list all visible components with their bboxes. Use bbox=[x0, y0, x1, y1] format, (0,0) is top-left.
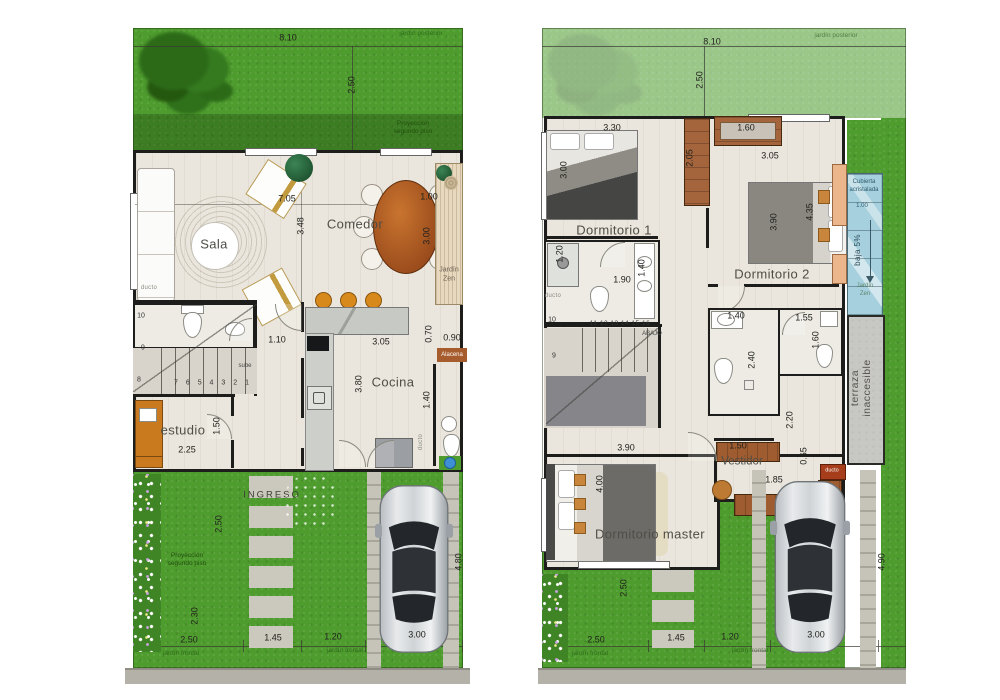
dim-label: 7 6 5 4 3 2 1 bbox=[174, 380, 252, 387]
room-label-vestidor: Vestidor bbox=[721, 456, 763, 468]
wall bbox=[433, 364, 436, 466]
shelf bbox=[135, 456, 163, 468]
dim-label: 1.90 bbox=[613, 276, 631, 285]
dim-label: 3.90 bbox=[770, 213, 779, 231]
dim-label: 2.50 bbox=[587, 636, 605, 645]
dim-label: ABAJO bbox=[642, 331, 662, 337]
dim-label: baja 5% bbox=[854, 234, 862, 266]
dim-label: 3.00 bbox=[560, 161, 569, 179]
bush bbox=[283, 474, 339, 530]
dim-label: 2.50 bbox=[620, 579, 629, 597]
dim-label: 1.85 bbox=[765, 476, 783, 485]
dim-label: 1.20 bbox=[721, 633, 739, 642]
dim-label: 2.50 bbox=[180, 636, 198, 645]
window bbox=[380, 148, 432, 156]
dim-label: 1.00 bbox=[420, 193, 438, 202]
label-alacena: Alacena bbox=[441, 352, 463, 358]
dim-label: ducto bbox=[141, 285, 157, 291]
room-label-comedor: Comedor bbox=[327, 218, 383, 231]
dim-label: 4.80 bbox=[455, 553, 464, 571]
closet-dormitorio-2 bbox=[832, 164, 847, 226]
dim-label: 8.10 bbox=[279, 34, 297, 43]
slope-arrowhead bbox=[866, 276, 874, 283]
headboard bbox=[546, 464, 555, 560]
dim-label: 3.90 bbox=[617, 444, 635, 453]
dim-label: 3.30 bbox=[603, 124, 621, 133]
dim-label: ducto bbox=[825, 468, 838, 474]
dim-label: 9 bbox=[552, 353, 556, 360]
dim-label: 1.60 bbox=[812, 331, 821, 349]
dim-label: 1.50 bbox=[729, 442, 747, 451]
dim-tick bbox=[878, 640, 879, 652]
dim-label: 2.30 bbox=[191, 607, 200, 625]
wall bbox=[231, 440, 234, 468]
dim-label: 2.50 bbox=[348, 76, 357, 94]
dim-tick bbox=[243, 640, 244, 652]
dim-label: 4.00 bbox=[596, 475, 605, 493]
dim-label: 10 bbox=[137, 313, 145, 320]
dim-label: jardín frontal bbox=[163, 651, 199, 658]
dim-label: Zen bbox=[860, 291, 870, 297]
flower-bed bbox=[133, 474, 161, 652]
dim-tick bbox=[704, 640, 705, 652]
pillow bbox=[584, 133, 614, 150]
dim-label: 1.20 bbox=[324, 633, 342, 642]
wall bbox=[301, 448, 304, 466]
dim-tick bbox=[648, 640, 649, 652]
stair-diagonal bbox=[546, 328, 658, 424]
dim-line bbox=[542, 646, 906, 647]
dim-label: 0.90 bbox=[443, 334, 461, 343]
dim-label: 3.48 bbox=[297, 217, 306, 235]
cushion bbox=[818, 190, 830, 204]
kitchen-bar-counter bbox=[305, 307, 409, 335]
dim-line bbox=[542, 46, 906, 47]
room-label-dormitorio-2: Dormitorio 2 bbox=[734, 268, 810, 281]
dim-label: 2.05 bbox=[686, 149, 695, 167]
flower-bed bbox=[542, 574, 568, 662]
sidewalk bbox=[538, 668, 906, 684]
floor-plan-upper: 8.102.50jardín posterior3.303.002.051.60… bbox=[538, 28, 906, 682]
dim-label: 3.00 bbox=[423, 227, 432, 245]
cushion bbox=[574, 474, 586, 486]
dim-label: 1.40 bbox=[638, 259, 647, 277]
sofa bbox=[137, 168, 175, 302]
dim-line bbox=[133, 46, 463, 47]
water-feature bbox=[444, 457, 456, 469]
dim-label: 3.05 bbox=[372, 338, 390, 347]
dim-label: 4.90 bbox=[878, 553, 887, 571]
dim-label: 11 12 13 14 15 16 bbox=[590, 321, 650, 328]
cushion bbox=[818, 228, 830, 242]
floor-plan-ground: 8.102.50jardín posteriorProyecciónsegund… bbox=[125, 28, 470, 682]
dim-label: 4.35 bbox=[806, 203, 815, 221]
dim-label: 1.40 bbox=[423, 391, 432, 409]
dim-label: sube bbox=[238, 363, 251, 369]
label-ingreso: INGRESO bbox=[243, 490, 301, 500]
dim-label: jardín posterior bbox=[814, 33, 857, 40]
sink-counter bbox=[820, 311, 838, 327]
dim-label: 0.65 bbox=[800, 447, 809, 465]
wall bbox=[658, 324, 661, 428]
dim-label: 2.50 bbox=[696, 71, 705, 89]
room-label-dormitorio-master: Dormitorio master bbox=[595, 528, 705, 541]
dim-label: 8.10 bbox=[703, 38, 721, 47]
room-label-sala: Sala bbox=[200, 238, 228, 251]
dim-label: segundo piso bbox=[168, 561, 207, 568]
wall bbox=[744, 284, 839, 287]
stove bbox=[307, 336, 329, 351]
dim-label: 3.00 bbox=[408, 631, 426, 640]
driveway-edge bbox=[752, 470, 766, 668]
window bbox=[578, 561, 670, 569]
pillow bbox=[558, 470, 575, 498]
dim-label: ducto bbox=[418, 434, 424, 450]
laptop bbox=[139, 408, 157, 422]
plant bbox=[285, 154, 313, 182]
dim-label: 8 bbox=[137, 377, 141, 384]
closet-dormitorio-2 bbox=[832, 254, 847, 284]
room-label-estudio: estudio bbox=[161, 424, 206, 437]
dim-label: 1.40 bbox=[727, 312, 745, 321]
zen-spiral bbox=[444, 176, 458, 190]
dim-label: jardín posterior bbox=[399, 31, 442, 38]
wall bbox=[706, 208, 709, 248]
pillow bbox=[558, 502, 575, 530]
dim-tick bbox=[365, 640, 366, 652]
dim-label: 2.25 bbox=[178, 446, 196, 455]
dim-label: Proyección bbox=[397, 121, 429, 128]
driveway-edge bbox=[860, 470, 876, 668]
sidewalk bbox=[125, 668, 470, 684]
dim-label: 1.00 bbox=[856, 203, 868, 209]
slope-arrow bbox=[870, 220, 871, 276]
dim-label: 7.05 bbox=[278, 195, 296, 204]
room-label-cocina: Cocina bbox=[372, 376, 415, 389]
dim-label: 9 bbox=[141, 345, 145, 352]
dim-label: 10 bbox=[548, 317, 556, 324]
dim-label: Jardín bbox=[857, 283, 874, 289]
wc-sink bbox=[441, 416, 457, 432]
dim-label: 1.60 bbox=[737, 124, 755, 133]
pouf bbox=[712, 480, 732, 500]
dim-label: jardín frontal bbox=[572, 651, 608, 658]
sink bbox=[637, 280, 652, 292]
dim-label: 1.45 bbox=[264, 634, 282, 643]
dim-line bbox=[352, 46, 353, 150]
cushion bbox=[574, 522, 586, 534]
dim-label: Zen bbox=[443, 276, 455, 283]
pillow bbox=[550, 133, 580, 150]
dim-label: 3.80 bbox=[355, 375, 364, 393]
dim-label: 3.00 bbox=[807, 631, 825, 640]
dim-label: ducto bbox=[545, 293, 561, 299]
wall bbox=[133, 394, 235, 397]
floor-plan-canvas: 8.102.50jardín posteriorProyecciónsegund… bbox=[0, 0, 1000, 700]
dim-tick bbox=[301, 640, 302, 652]
dim-label: inaccesible bbox=[862, 359, 873, 416]
dim-label: jardín frontal bbox=[732, 648, 768, 655]
dim-label: 3.05 bbox=[761, 152, 779, 161]
wall bbox=[708, 284, 718, 287]
dim-label: terraza bbox=[850, 370, 861, 406]
dim-label: 1.45 bbox=[667, 634, 685, 643]
dim-label: 2.20 bbox=[786, 411, 795, 429]
wall bbox=[231, 394, 234, 416]
dim-label: 2.40 bbox=[748, 351, 757, 369]
sink-basin bbox=[313, 392, 325, 404]
room-label-dormitorio-1: Dormitorio 1 bbox=[576, 224, 652, 237]
dim-label: Cubierta bbox=[853, 179, 876, 185]
dim-label: acristalada bbox=[849, 187, 878, 193]
drain bbox=[744, 380, 754, 390]
dim-label: 2.50 bbox=[215, 515, 224, 533]
dim-tick bbox=[462, 640, 463, 652]
window bbox=[245, 148, 317, 156]
dim-label: 1.20 bbox=[556, 245, 565, 263]
cushion bbox=[574, 498, 586, 510]
dim-label: Jardín bbox=[439, 267, 458, 274]
dim-label: 1.50 bbox=[213, 417, 222, 435]
dim-label: 1.10 bbox=[268, 336, 286, 345]
dim-label: 0.70 bbox=[425, 325, 434, 343]
dim-label: segundo piso bbox=[394, 129, 433, 136]
wall bbox=[301, 358, 304, 418]
dim-label: jardín frontal bbox=[327, 648, 363, 655]
dim-label: Proyección bbox=[171, 553, 203, 560]
dim-label: 1.55 bbox=[795, 314, 813, 323]
